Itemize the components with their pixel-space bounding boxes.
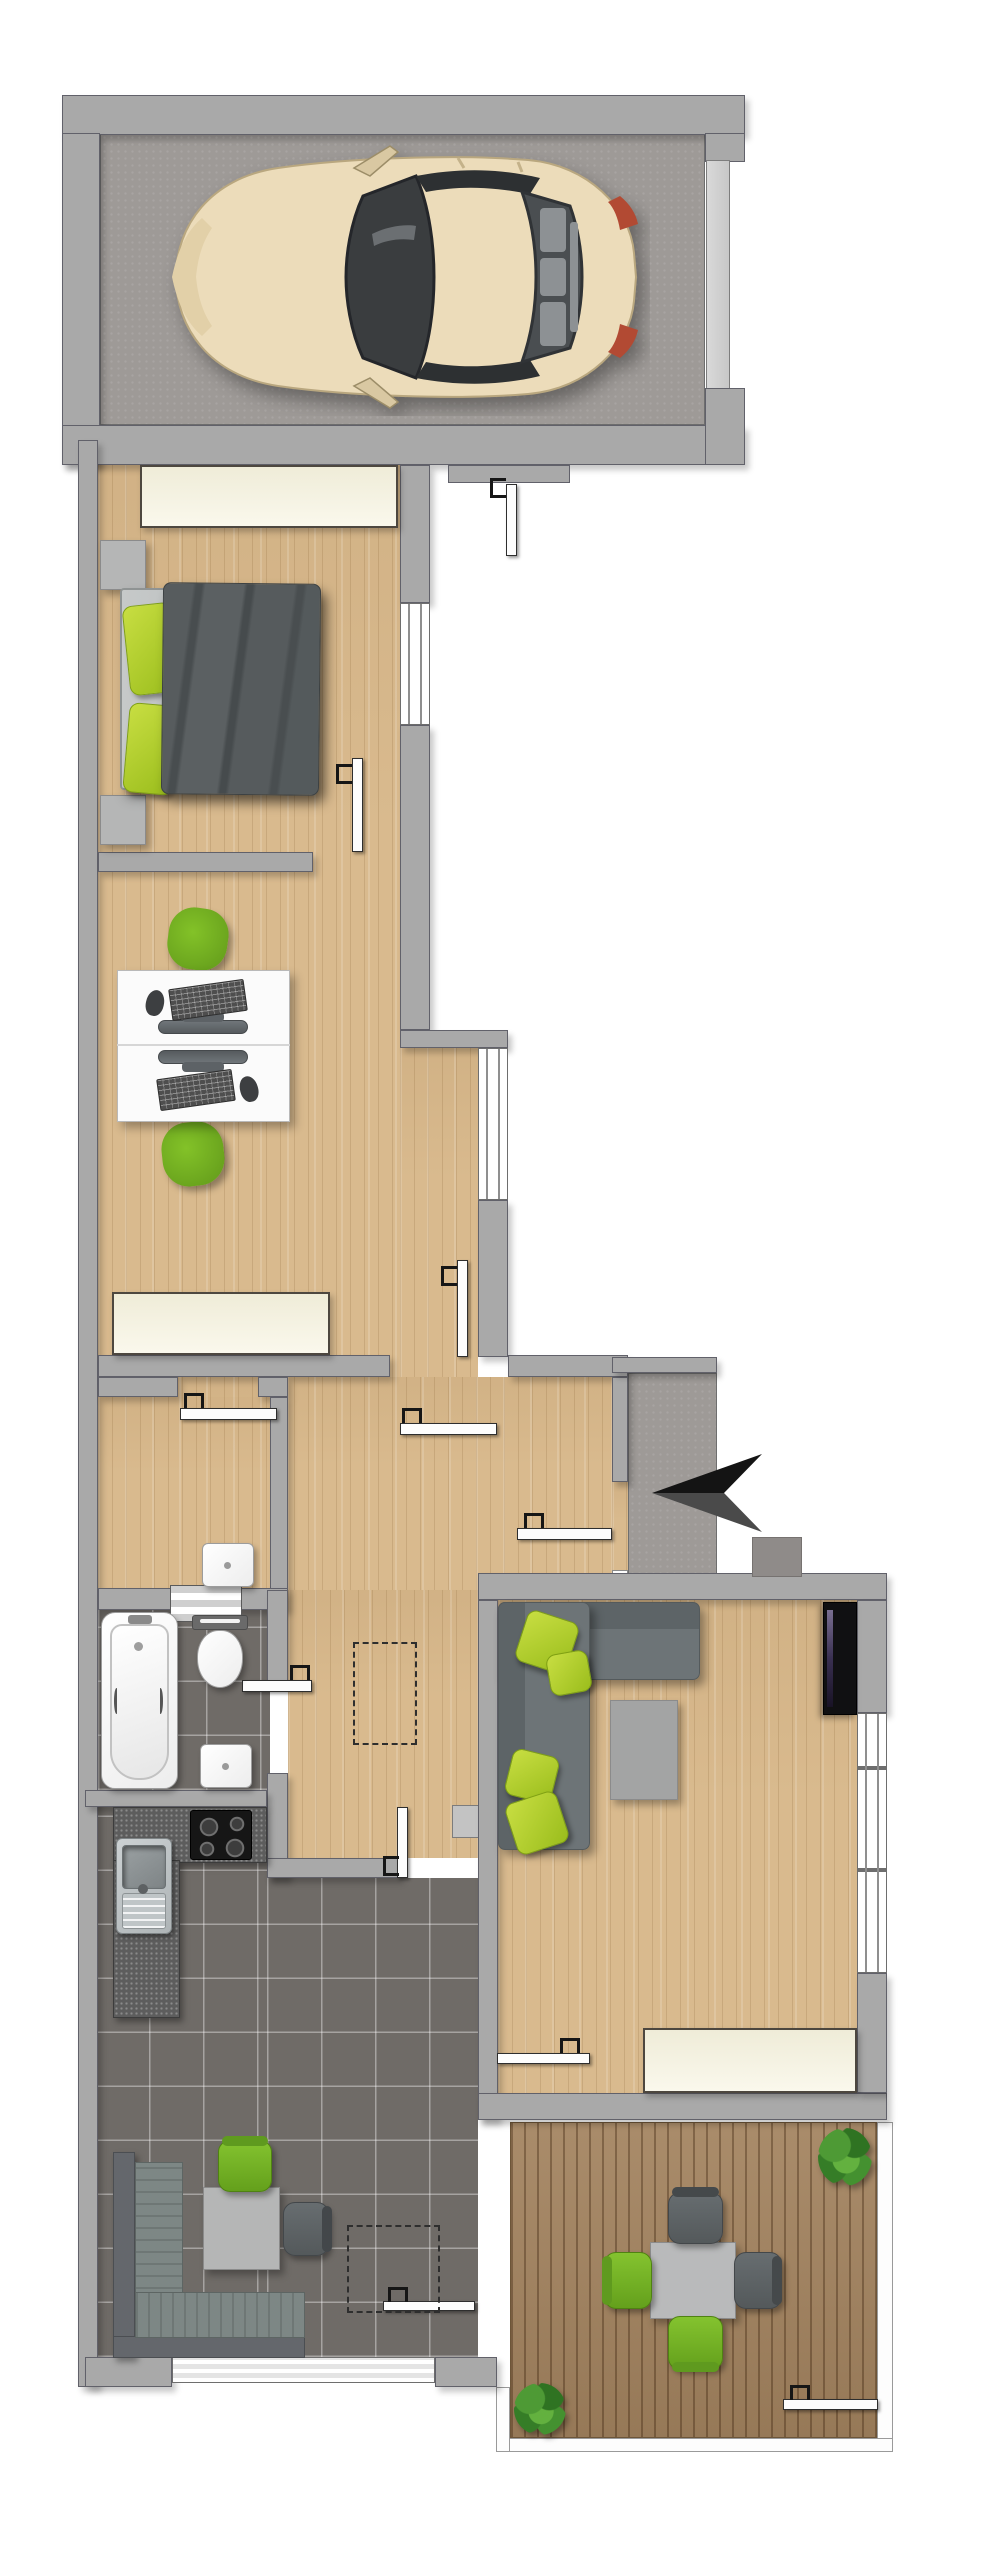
garage-wall-top xyxy=(62,95,745,135)
skylight-outline xyxy=(347,2225,440,2313)
hall-east-wall xyxy=(478,1200,508,1357)
sofa-cushion-2 xyxy=(545,1649,594,1698)
dining-chair-green-back xyxy=(222,2136,268,2146)
office-desk-divider xyxy=(117,1044,290,1046)
bathtub-handle-left xyxy=(114,1688,119,1714)
toilet-tank-slit xyxy=(200,1619,240,1623)
door-hinge-icon xyxy=(560,2038,580,2053)
terrace-gate-leaf xyxy=(783,2399,878,2410)
garage-wall-right-bottom xyxy=(705,388,745,465)
kitchen-faucet xyxy=(138,1884,148,1894)
corner-bench-back-bottom xyxy=(113,2336,305,2358)
garage-wall-right-top xyxy=(705,133,745,162)
living-north-wall xyxy=(478,1573,887,1600)
bedroom-east-wall-lower xyxy=(400,725,430,1030)
terrace-border-bottom xyxy=(498,2438,893,2452)
living-east-wall-upper xyxy=(857,1600,887,1713)
kitchen-south-wall-corner xyxy=(85,2357,172,2387)
door-hinge-icon xyxy=(790,2385,810,2400)
entry-door-leaf xyxy=(517,1528,612,1540)
terrace-chair-right-back xyxy=(772,2256,782,2305)
wc-north-wall-right xyxy=(258,1377,288,1397)
wc-door-leaf xyxy=(180,1408,277,1420)
hall-passage-door-leaf xyxy=(400,1423,497,1435)
terrace-border-right xyxy=(877,2122,893,2452)
door-hinge-icon xyxy=(524,1513,544,1528)
attic-hatch-outline xyxy=(353,1642,417,1745)
terrace-border-left xyxy=(496,2387,510,2452)
living-terrace-door-leaf xyxy=(497,2053,590,2064)
terrace-plant-top-icon xyxy=(818,2128,872,2186)
door-hinge-icon xyxy=(336,764,352,784)
living-terrace-wall xyxy=(478,2093,887,2120)
corner-bench-back xyxy=(113,2152,135,2358)
kitchen-sink-drainer xyxy=(122,1893,166,1929)
living-east-wall-lower xyxy=(857,1973,887,2093)
bath-east-wall-upper xyxy=(267,1590,288,1683)
office-south-wall xyxy=(98,1355,390,1377)
bedroom-east-window xyxy=(400,603,430,725)
terrace-chair-top-back xyxy=(672,2187,719,2197)
bathtub-faucet xyxy=(128,1615,152,1624)
garage-side-door-leaf xyxy=(506,484,517,556)
door-hinge-icon xyxy=(402,1408,422,1423)
dining-chair-green xyxy=(218,2140,272,2192)
terrace-table xyxy=(650,2242,736,2319)
wc-east-wall xyxy=(270,1397,288,1590)
bedroom-door-leaf xyxy=(352,758,363,852)
living-window-seat xyxy=(643,2028,857,2093)
living-west-wall xyxy=(478,1600,498,2120)
corner-bench-seat-bottom xyxy=(135,2292,305,2338)
terrace-chair-bottom-back xyxy=(672,2362,719,2372)
monitor-top xyxy=(158,1020,248,1034)
coffee-table xyxy=(610,1700,678,1800)
bed-duvet xyxy=(161,582,321,796)
hall-north-east-wall xyxy=(508,1355,628,1377)
door-hinge-icon xyxy=(383,1856,399,1876)
hall-east-door-leaf xyxy=(457,1260,468,1357)
living-east-windows xyxy=(857,1713,887,1973)
door-hinge-icon xyxy=(490,478,506,498)
bedroom-office-divider xyxy=(98,852,313,872)
kitchen-sink-basin xyxy=(122,1845,166,1889)
toilet-bowl xyxy=(197,1630,243,1688)
nightstand-top xyxy=(100,540,146,590)
car-top-view xyxy=(158,138,650,416)
terrace-chair-top xyxy=(668,2192,723,2244)
floor-plan-canvas xyxy=(0,0,989,2560)
entry-opening-floor xyxy=(612,1482,628,1577)
garage-wall-bottom xyxy=(62,425,745,465)
garage-south-stub xyxy=(448,465,570,483)
door-hinge-icon xyxy=(290,1665,310,1680)
hall-porch-wall xyxy=(612,1377,628,1482)
bath-basin-drain xyxy=(222,1763,229,1770)
cooktop xyxy=(190,1810,252,1860)
wc-basin-drain xyxy=(224,1562,231,1569)
dining-table xyxy=(203,2187,280,2270)
garage-door xyxy=(706,160,730,390)
door-hinge-icon xyxy=(184,1393,204,1408)
wc-north-wall-left xyxy=(98,1377,178,1397)
bath-kitchen-divider xyxy=(85,1790,267,1807)
tv-screen xyxy=(827,1610,833,1707)
corridor-kitchen-wall xyxy=(267,1858,400,1878)
kitchen-south-window xyxy=(172,2357,435,2383)
kitchen-pier xyxy=(452,1805,480,1838)
entrance-arrow-icon xyxy=(652,1450,764,1536)
doormat xyxy=(752,1537,802,1577)
bathtub-drain xyxy=(134,1642,143,1651)
bathroom-door-leaf xyxy=(242,1680,312,1692)
terrace-plant-bottom-icon xyxy=(514,2383,566,2435)
kitchen-south-wall-right xyxy=(435,2357,497,2387)
west-outer-wall xyxy=(78,440,98,2387)
terrace-chair-left-back xyxy=(602,2256,612,2305)
office-east-window xyxy=(478,1048,508,1200)
bedroom-east-wall-upper xyxy=(400,465,430,603)
east-jog-wall xyxy=(400,1030,508,1048)
porch-north-wall xyxy=(612,1357,717,1373)
office-window xyxy=(112,1292,330,1355)
bedroom-window xyxy=(140,465,398,528)
dining-chair-gray-back xyxy=(322,2206,332,2252)
nightstand-bottom xyxy=(100,795,146,845)
bathtub-handle-right xyxy=(158,1688,163,1714)
door-hinge-icon xyxy=(441,1266,457,1286)
garage-wall-left xyxy=(62,133,100,465)
